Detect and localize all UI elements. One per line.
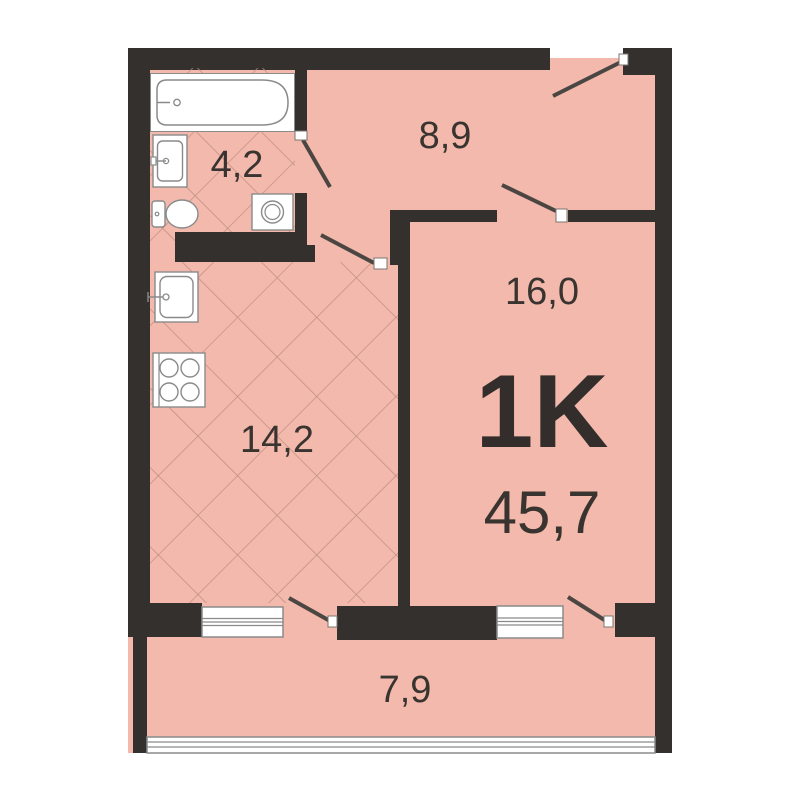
bathroom-sink: [151, 135, 187, 187]
total-area-label: 45,7: [484, 483, 601, 543]
entrance-door-hinge: [619, 54, 628, 65]
entrance-door-swing: [553, 61, 623, 96]
toilet: [152, 200, 198, 228]
balcony-area-label: 7,9: [379, 671, 432, 709]
room-door-swing: [502, 185, 556, 211]
floor-plan: 4,2 8,9 16,0 14,2 7,9 1K 45,7: [0, 0, 800, 800]
kitchen-door-hinge: [374, 258, 387, 269]
balcony-glazing: [147, 737, 655, 753]
kitchen-balcony-door-hinge: [328, 616, 337, 627]
apartment-type-label: 1K: [476, 360, 609, 464]
living-room-area-label: 16,0: [505, 273, 579, 311]
kitchen-area-label: 14,2: [240, 421, 314, 459]
room-balcony-door-swing: [568, 597, 606, 621]
bathroom-door-hinge: [295, 131, 307, 140]
kitchen-sink: [148, 272, 198, 322]
kitchen-door-swing: [321, 235, 374, 263]
washing-machine: [252, 194, 293, 230]
hallway-area-label: 8,9: [419, 117, 472, 155]
bathtub: [151, 74, 295, 132]
room-window: [497, 606, 563, 638]
bathroom-area-label: 4,2: [211, 146, 264, 184]
bathroom-door-swing: [303, 140, 330, 187]
room-balcony-door-hinge: [604, 616, 613, 627]
room-door-hinge: [556, 209, 567, 222]
stove: [153, 353, 205, 407]
kitchen-window: [202, 607, 283, 637]
